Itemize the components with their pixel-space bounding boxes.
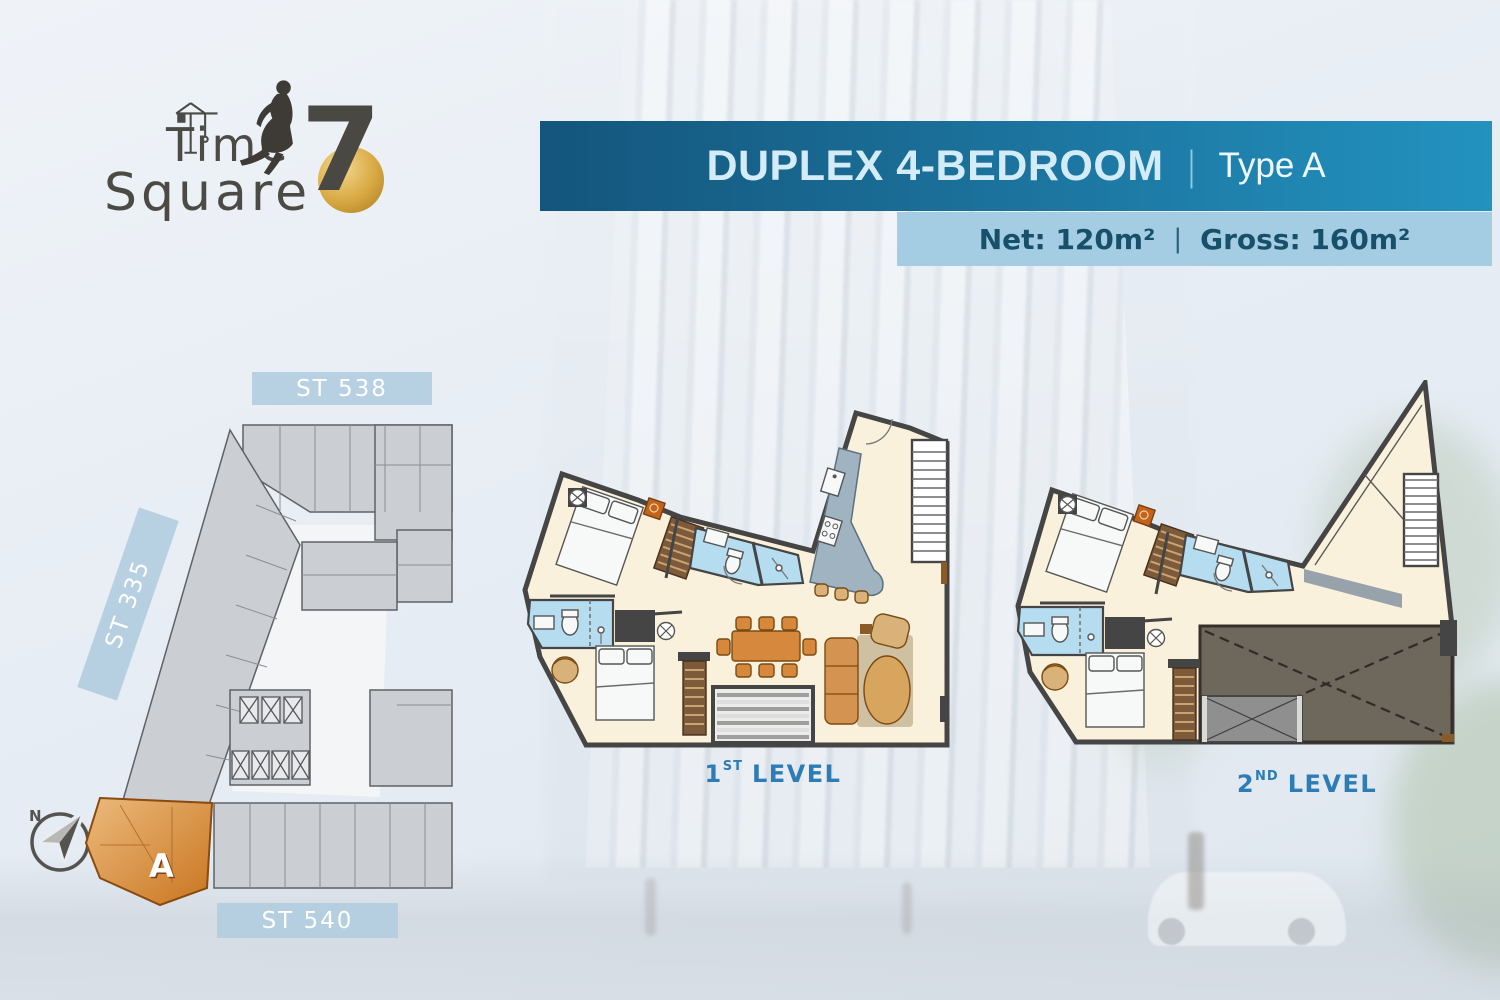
armchair [1042, 664, 1068, 690]
logo-time-square-7: Time Square 7 [100, 85, 440, 260]
brochure-page: Time Square 7 DUPLEX 4-BEDROOM | Type A … [0, 0, 1500, 1000]
unit-type-variant: Type A [1219, 146, 1326, 186]
void-lower-box [1202, 696, 1302, 742]
ceiling-fan-icon [1148, 630, 1165, 647]
title-divider: | [1188, 142, 1194, 190]
wall-accent [1440, 620, 1457, 656]
wall-accent [941, 562, 947, 584]
bathroom-guest [1018, 607, 1103, 655]
area-banner: Net: 120m² | Gross: 160m² [897, 212, 1492, 266]
ceiling-fan-icon [1058, 495, 1077, 514]
keyplan-unit-a-highlight: A A [86, 798, 212, 905]
background-car [1148, 872, 1346, 946]
ceiling-fan-icon [568, 488, 587, 507]
bedroom2-bed [596, 646, 654, 720]
ceiling-fan-icon [658, 623, 675, 640]
staircase [1404, 474, 1438, 566]
tv-wall [1105, 617, 1145, 649]
wall-accent [940, 696, 947, 722]
area-divider: | [1173, 224, 1182, 254]
gross-area: Gross: 160m² [1200, 223, 1410, 256]
wardrobe [678, 652, 710, 735]
background-person [645, 878, 656, 936]
title-banner: DUPLEX 4-BEDROOM | Type A [540, 121, 1492, 211]
car-wheel [1158, 918, 1185, 945]
car-wheel [1288, 918, 1315, 945]
floorplan-level1 [520, 400, 965, 765]
level1-label: 1STLEVEL [688, 760, 858, 788]
street-label-st538: ST 538 [252, 372, 432, 405]
staircase [912, 440, 947, 562]
keyplan-floor-overview: A A [60, 405, 456, 910]
floorplan-level2 [1010, 380, 1480, 770]
background-person [1188, 832, 1204, 910]
balcony-louvers [713, 687, 813, 743]
keyplan-unit-a-label: A [149, 847, 174, 885]
bedroom4-bed [1086, 653, 1144, 727]
wall-accent [1442, 734, 1454, 742]
dancer-silhouette-icon [218, 71, 322, 175]
bathroom-guest [528, 600, 613, 648]
wardrobe [1168, 659, 1200, 740]
level2-label: 2NDLEVEL [1222, 770, 1392, 798]
tv-wall [615, 610, 655, 642]
unit-type-title: DUPLEX 4-BEDROOM [706, 142, 1163, 191]
net-area: Net: 120m² [979, 223, 1156, 256]
armchair [552, 657, 578, 683]
background-person [902, 882, 912, 934]
compass-north-label: N [29, 807, 42, 825]
